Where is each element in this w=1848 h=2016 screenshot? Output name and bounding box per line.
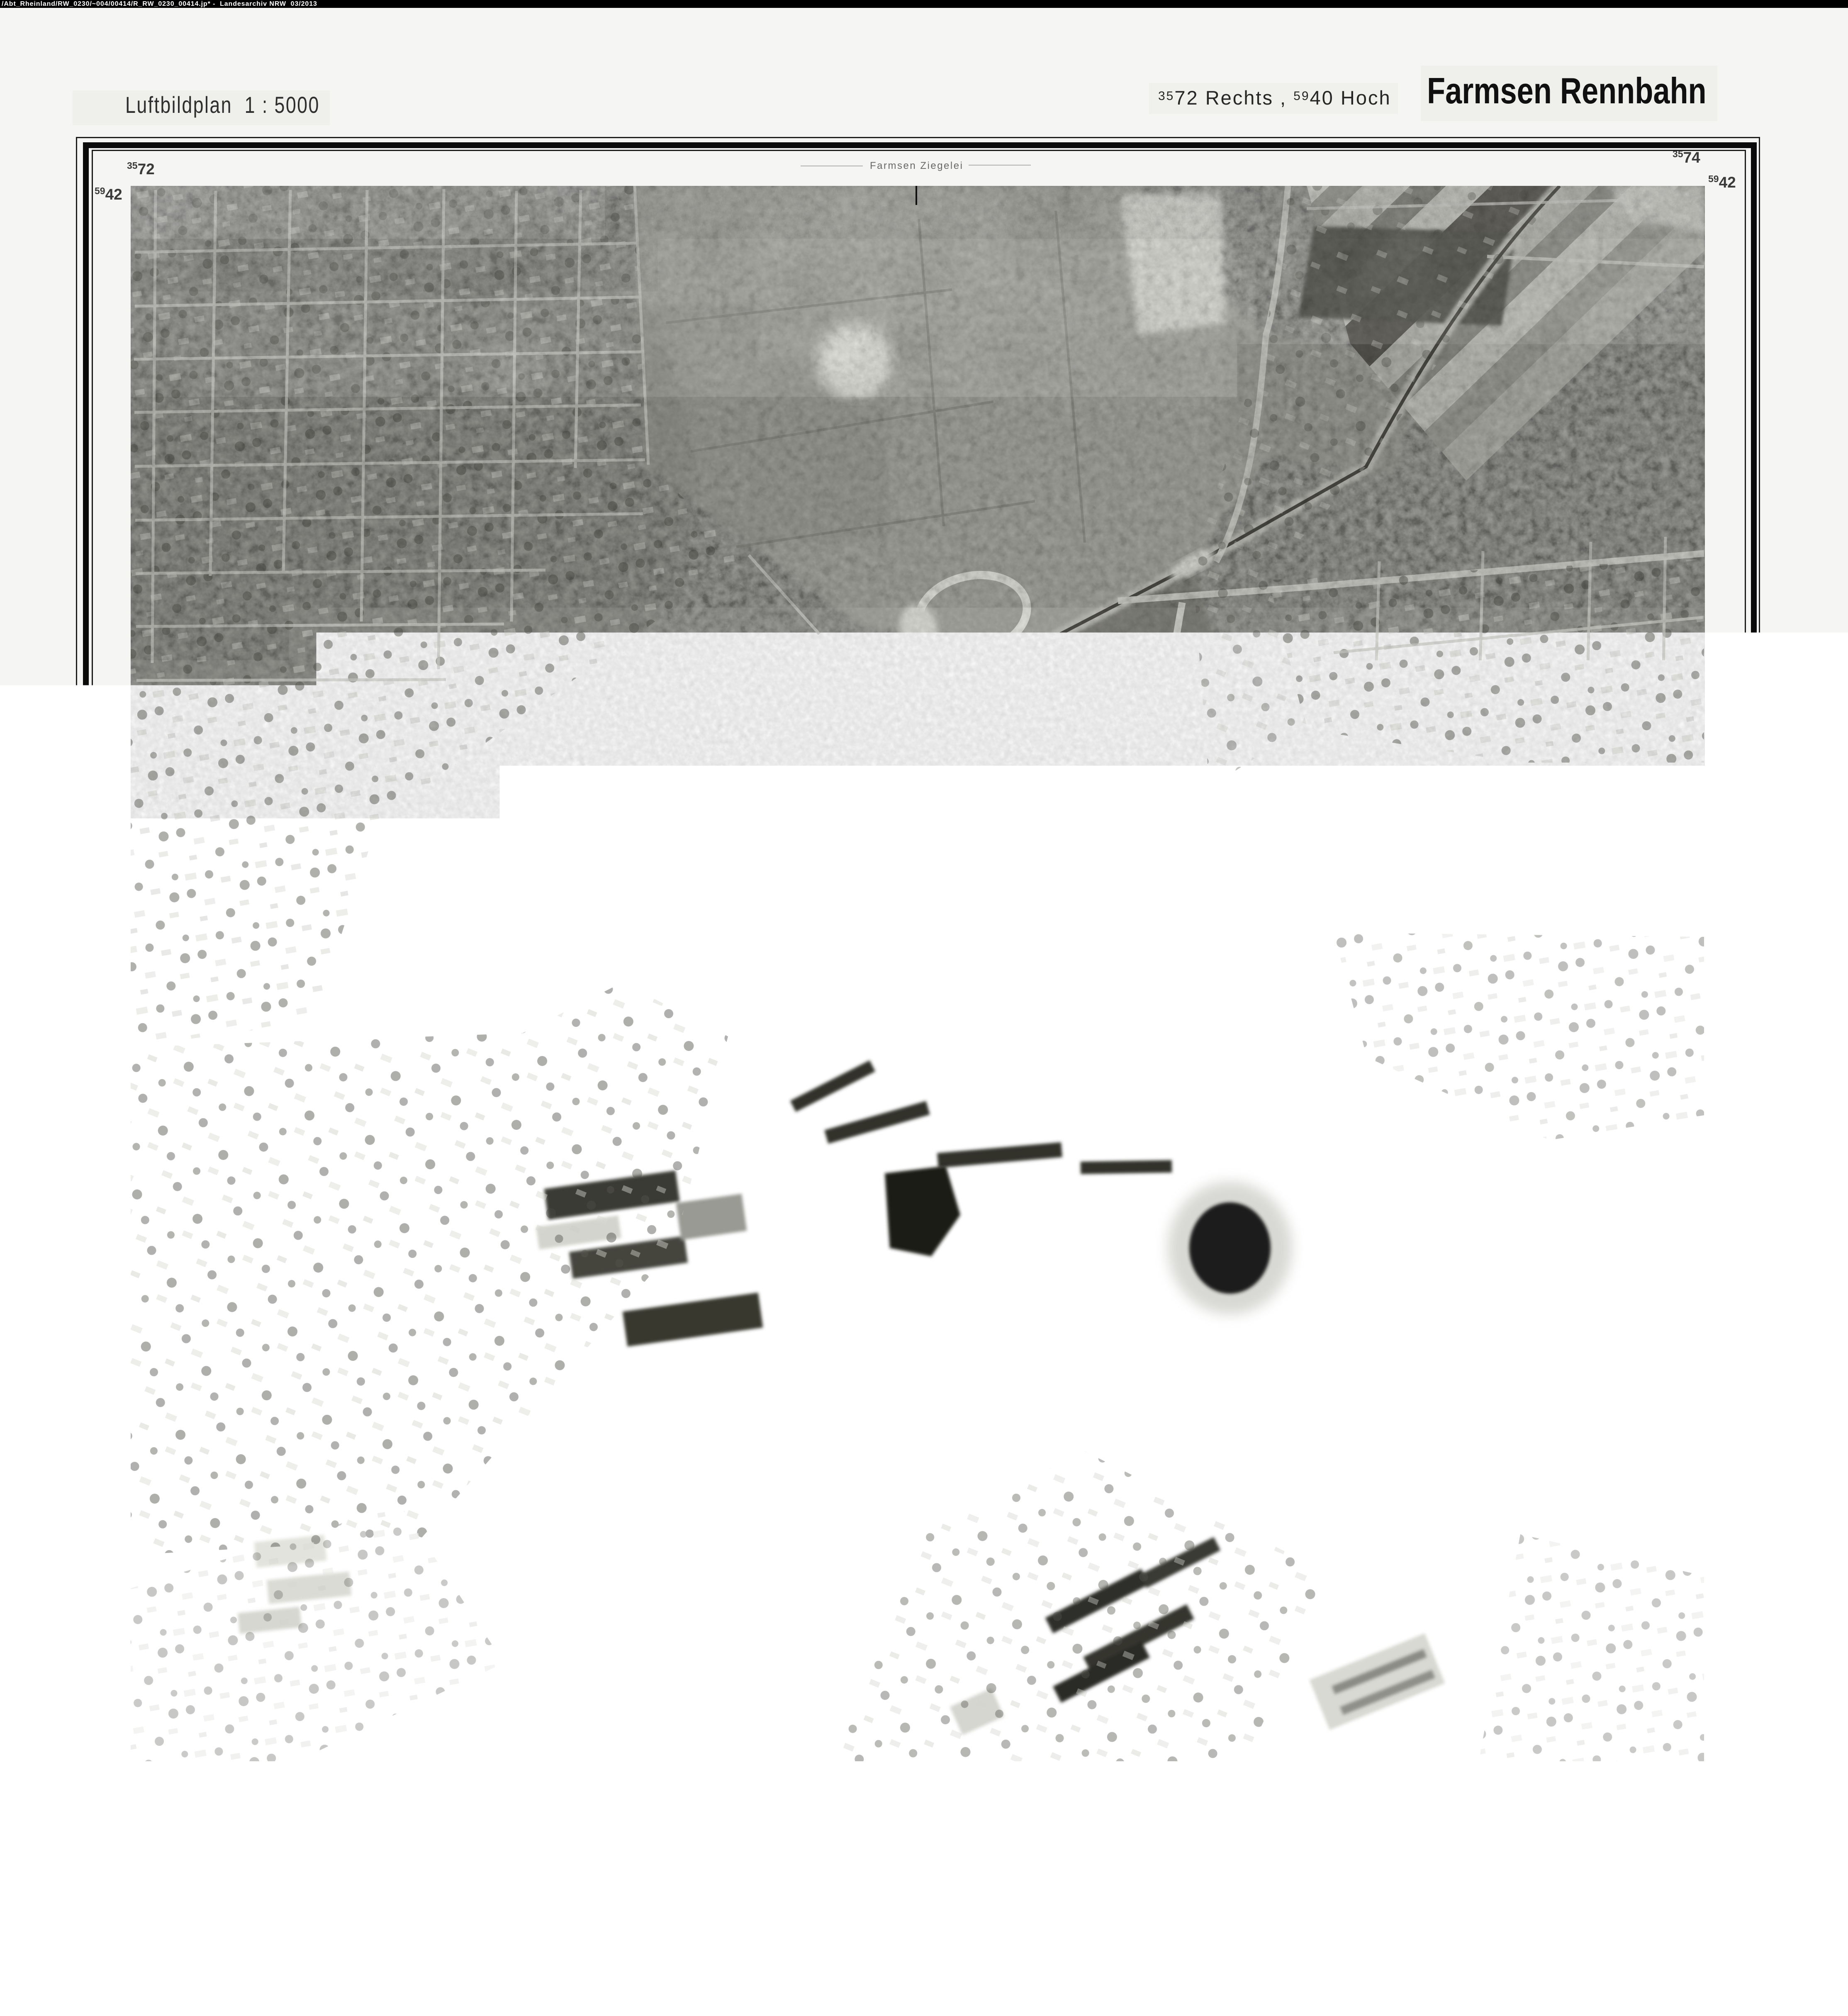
svg-text:500 m: 500 m: [1135, 1870, 1167, 1882]
svg-text:300: 300: [991, 1870, 1010, 1883]
svg-text:Rennbahn: Rennbahn: [846, 951, 982, 974]
svg-text:100: 100: [835, 1870, 855, 1883]
svg-text:200: 200: [914, 1870, 933, 1883]
svg-text:0: 0: [762, 1870, 769, 1883]
svg-text:100: 100: [679, 1870, 699, 1883]
svg-text:400: 400: [1070, 1870, 1089, 1883]
